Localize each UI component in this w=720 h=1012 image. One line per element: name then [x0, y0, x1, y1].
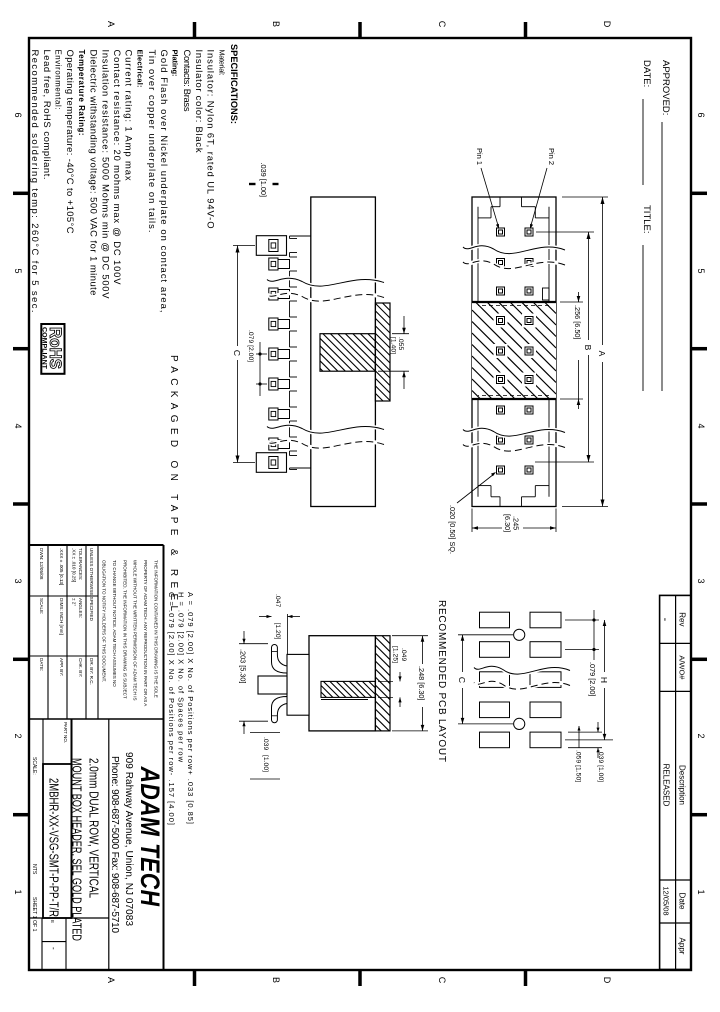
svg-text:.039 [1.00]: .039 [1.00] — [259, 163, 268, 198]
svg-text:2: 2 — [696, 733, 706, 738]
svg-text:Contact resistance: 20 mohm: Contact resistance: 20 mohms max @ DC 10… — [112, 50, 123, 286]
svg-text:Appr: Appr — [678, 938, 687, 955]
svg-text:Lead free, RoHS compliant.: Lead free, RoHS compliant. — [42, 50, 53, 180]
svg-text:NTS: NTS — [31, 864, 37, 875]
svg-text:Insulation resistance: 5000: Insulation resistance: 5000 Mohms min @ … — [100, 50, 111, 300]
svg-text:SHEET 1 OF 1: SHEET 1 OF 1 — [31, 897, 37, 932]
svg-text:Plating:: Plating: — [171, 50, 180, 77]
svg-text:3: 3 — [13, 578, 23, 583]
svg-text:Description: Description — [678, 765, 687, 805]
svg-text:5: 5 — [696, 268, 706, 273]
svg-text:APPROVED:: APPROVED: — [660, 60, 671, 115]
svg-text:UNLESS OTHERWISE SPECIFIED: UNLESS OTHERWISE SPECIFIED — [89, 548, 94, 622]
svg-text:.039 [1.00]: .039 [1.00] — [597, 750, 604, 782]
svg-text:Recommended soldering temp:: Recommended soldering temp: 260°C for 5 … — [30, 50, 41, 313]
svg-text:DIMS: INCH [mm]: DIMS: INCH [mm] — [59, 598, 64, 635]
svg-text:WHOLE WITHOUT THE WRITTEN PERM: WHOLE WITHOUT THE WRITTEN PERMISSION OF … — [133, 560, 138, 701]
svg-text:COMPLIANT: COMPLIANT — [40, 327, 46, 369]
svg-text:RoHS: RoHS — [46, 327, 65, 369]
svg-text:D: D — [602, 977, 612, 984]
svg-text:[6.30]: [6.30] — [503, 514, 512, 532]
svg-text:.XX ± .010 [0.25]: .XX ± .010 [0.25] — [72, 548, 77, 582]
svg-text:Current rating: 1 Amp max: Current rating: 1 Amp max — [124, 50, 135, 181]
svg-text:THE INFORMATION CONTAINED IN T: THE INFORMATION CONTAINED IN THIS DRAWIN… — [154, 560, 159, 698]
svg-text:B: B — [271, 977, 281, 983]
svg-text:2.0mm DUAL ROW, VERTICAL: 2.0mm DUAL ROW, VERTICAL — [86, 758, 101, 898]
svg-text:.055: .055 — [397, 337, 404, 350]
svg-text:D: D — [602, 21, 612, 28]
svg-text:E: E — [50, 920, 55, 923]
svg-text:C: C — [457, 677, 467, 683]
svg-text:4: 4 — [13, 423, 23, 428]
svg-text:SCALE:: SCALE: — [31, 757, 37, 775]
svg-text:.256 [6.50]: .256 [6.50] — [573, 305, 582, 340]
svg-text:Temperature Rating:: Temperature Rating: — [77, 50, 86, 136]
svg-text:A/WO#: A/WO# — [678, 655, 687, 680]
svg-text:C = .079 [2.00] X No. of: C = .079 [2.00] X No. of Positions per r… — [167, 592, 176, 825]
svg-text:H = .079 [2.00] X No. of: H = .079 [2.00] X No. of Spaces per row — [177, 592, 186, 763]
svg-text:6: 6 — [13, 112, 23, 117]
svg-text:PROHIBITED. THE INFORMATION I: PROHIBITED. THE INFORMATION IN THIS DRAW… — [122, 560, 127, 699]
svg-text:RECOMMENDED PCB LAYOUT: RECOMMENDED PCB LAYOUT — [436, 600, 447, 762]
svg-text:4: 4 — [696, 423, 706, 428]
svg-text:RELEASED: RELEASED — [662, 764, 671, 807]
svg-text:.XXX ± .005 [0.13]: .XXX ± .005 [0.13] — [59, 548, 64, 585]
svg-text:B: B — [271, 21, 281, 27]
svg-text:[1.20]: [1.20] — [274, 623, 281, 640]
svg-text:Environmental:: Environmental: — [54, 50, 63, 110]
svg-text:H: H — [599, 677, 609, 683]
svg-text:PROPERTY OF ADAM TECH. ANY RE: PROPERTY OF ADAM TECH. ANY REPRODUCTION … — [143, 560, 148, 706]
svg-text:DR. BY: R.C.: DR. BY: R.C. — [89, 658, 94, 685]
svg-text:Pin 2: Pin 2 — [547, 148, 556, 165]
svg-text:Gold Flash over Nickel und: Gold Flash over Nickel underplate on con… — [159, 50, 170, 313]
svg-text:A: A — [106, 977, 116, 983]
svg-text:.248 [6.30]: .248 [6.30] — [417, 666, 426, 701]
svg-text:5: 5 — [13, 268, 23, 273]
svg-text:C: C — [232, 350, 242, 356]
svg-text:DATE:: DATE: — [641, 60, 652, 87]
svg-text:DATE:: DATE: — [39, 658, 44, 671]
svg-text:Dielectric withstanding volt: Dielectric withstanding voltage: 500 VAC… — [89, 50, 100, 296]
svg-text:PART NO.: PART NO. — [63, 722, 68, 743]
svg-text:TO CHANGE WITHOUT NOTICE. ADA: TO CHANGE WITHOUT NOTICE. ADAM TECH ASSU… — [112, 560, 117, 687]
svg-text:Insulator: Nylon 6T, rated: Insulator: Nylon 6T, rated UL 94V-O — [206, 50, 217, 229]
svg-text:1: 1 — [696, 889, 706, 894]
svg-text:ANGLES:: ANGLES: — [78, 598, 83, 618]
svg-text:.203 [5.30]: .203 [5.30] — [239, 649, 248, 684]
svg-text:6: 6 — [696, 112, 706, 117]
svg-text:A = .079 [2.00] X No. of: A = .079 [2.00] X No. of Positions per r… — [186, 592, 195, 824]
svg-text:Contacts: Brass: Contacts: Brass — [182, 50, 193, 112]
svg-text:CHK. BY:: CHK. BY: — [78, 658, 83, 677]
svg-text:B: B — [583, 345, 593, 351]
svg-text:OBLIGATION TO NOTIFY HOLDERS O: OBLIGATION TO NOTIFY HOLDERS OF THIS DOC… — [102, 560, 107, 682]
svg-text:Operating temperature: -40°C: Operating temperature: -40°C to +105°C — [65, 50, 76, 234]
svg-text:DWN: 12/05/08: DWN: 12/05/08 — [39, 548, 44, 580]
svg-text:909 Rahway Avenue, Union, NJ 0: 909 Rahway Avenue, Union, NJ 07083 — [123, 752, 134, 926]
svg-text:± 2°: ± 2° — [72, 598, 77, 606]
svg-text:.059 [1.50]: .059 [1.50] — [575, 750, 582, 782]
svg-text:Tin over copper underplate: Tin over copper underplate on tails. — [147, 50, 158, 233]
svg-text:[1.40]: [1.40] — [390, 337, 397, 354]
svg-text:Date: Date — [678, 893, 687, 910]
svg-text:3: 3 — [696, 578, 706, 583]
svg-text:TITLE:: TITLE: — [641, 205, 652, 234]
svg-text:.047: .047 — [274, 594, 281, 607]
svg-text:2MBHR-XX-VSG-SMT-P-PP-T/R: 2MBHR-XX-VSG-SMT-P-PP-T/R — [47, 778, 62, 917]
svg-text:Electrical:: Electrical: — [135, 50, 144, 88]
svg-text:Phone: 908-687-5000 Fax: 908-6: Phone: 908-687-5000 Fax: 908-687-5710 — [109, 756, 120, 933]
svg-text:[1.00]: [1.00] — [262, 755, 269, 772]
svg-text:Material:: Material: — [217, 50, 226, 76]
svg-text:1: 1 — [13, 889, 23, 894]
svg-text:.039: .039 — [262, 737, 269, 750]
svg-text:C: C — [437, 977, 447, 984]
svg-text:C: C — [437, 21, 447, 28]
svg-text:12/05/08: 12/05/08 — [662, 886, 671, 915]
svg-text:APP. BY:: APP. BY: — [59, 658, 64, 676]
svg-text:Insulator color: Black: Insulator color: Black — [194, 50, 205, 153]
svg-text:.079 [2.00]: .079 [2.00] — [247, 330, 254, 362]
svg-text:A: A — [597, 351, 607, 357]
svg-text:TOLERANCES:: TOLERANCES: — [78, 548, 83, 580]
svg-text:Pin 1: Pin 1 — [475, 148, 484, 165]
svg-text:.079 [2.00]: .079 [2.00] — [588, 662, 597, 697]
svg-text:Rev: Rev — [678, 612, 687, 626]
svg-text:A: A — [106, 21, 116, 27]
svg-text:ADAM TECH: ADAM TECH — [135, 766, 165, 907]
svg-text:.049: .049 — [400, 648, 407, 661]
svg-text:2: 2 — [13, 733, 23, 738]
svg-text:SPECIFICATIONS:: SPECIFICATIONS: — [228, 44, 239, 124]
svg-text:[1.25]: [1.25] — [392, 646, 399, 663]
svg-text:-: - — [49, 947, 58, 950]
svg-text:SCALE:: SCALE: — [39, 598, 44, 614]
svg-text:.020 [0.50] SQ.: .020 [0.50] SQ. — [448, 505, 457, 554]
svg-text:-: - — [659, 618, 671, 622]
